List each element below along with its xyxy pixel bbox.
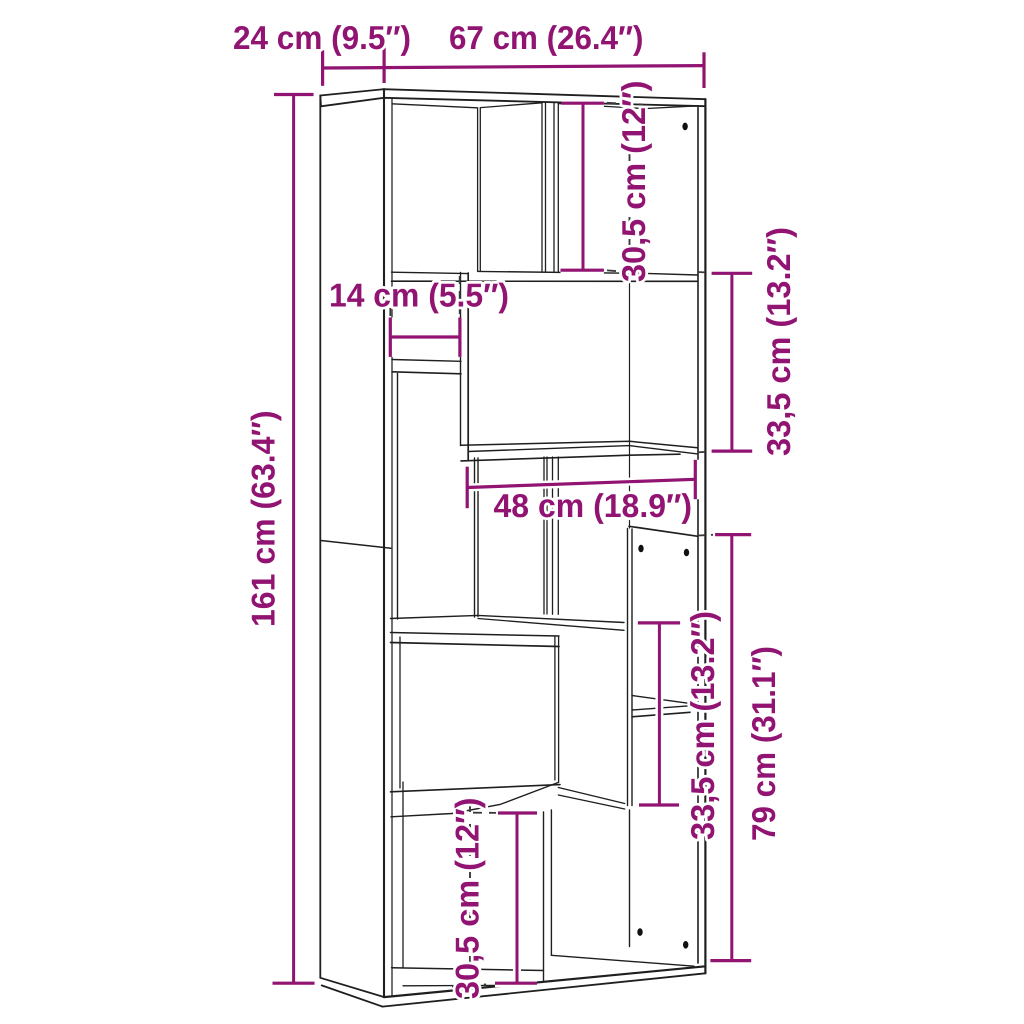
svg-text:48 cm (18.9″): 48 cm (18.9″) [494, 487, 693, 524]
svg-text:30,5 cm (12″): 30,5 cm (12″) [449, 798, 486, 1000]
svg-text:30,5 cm (12″): 30,5 cm (12″) [615, 81, 652, 283]
svg-text:33,5 cm (13.2″): 33,5 cm (13.2″) [760, 227, 797, 456]
svg-text:67 cm (26.4″): 67 cm (26.4″) [449, 19, 644, 56]
svg-text:14 cm (5.5″): 14 cm (5.5″) [329, 277, 509, 314]
svg-text:33,5 cm (13.2″): 33,5 cm (13.2″) [684, 611, 721, 840]
svg-text:161 cm (63.4″): 161 cm (63.4″) [245, 411, 282, 628]
svg-text:79 cm (31.1″): 79 cm (31.1″) [745, 646, 782, 841]
svg-text:24 cm (9.5″): 24 cm (9.5″) [233, 19, 411, 56]
